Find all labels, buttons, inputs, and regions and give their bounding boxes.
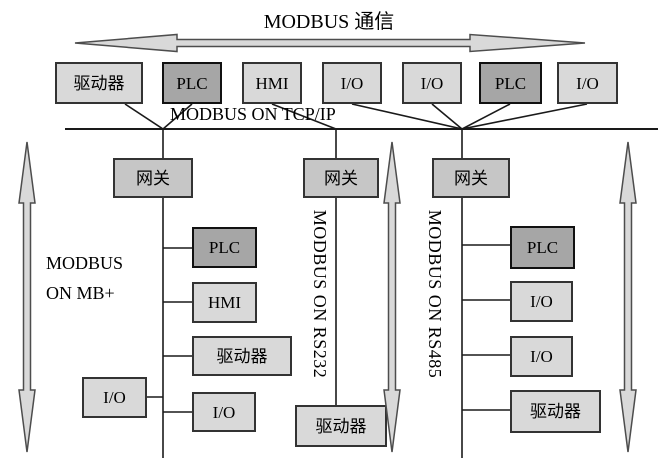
mbplus-device-driver: 驱动器: [192, 336, 292, 376]
rs485-device-stubs: [462, 245, 510, 410]
top-device-io-3: I/O: [557, 62, 618, 104]
mbplus-device-hmi: HMI: [192, 282, 257, 323]
rs232-branch-label: MODBUS ON RS232: [310, 194, 330, 394]
top-device-io-1: I/O: [322, 62, 382, 104]
rs485-branch-label: MODBUS ON RS485: [425, 194, 445, 394]
mbplus-branch-label-line2: ON MB+: [46, 278, 123, 308]
diagram-title: MODBUS 通信: [0, 5, 658, 34]
mbplus-branch-label: MODBUS ON MB+: [46, 248, 123, 308]
tcpip-bus-label: MODBUS ON TCP/IP: [170, 104, 336, 125]
top-device-plc-1: PLC: [162, 62, 222, 104]
modbus-architecture-diagram: MODBUS 通信 MODBUS ON TCP/IP MODBUS ON MB+…: [0, 0, 658, 463]
top-device-io-2: I/O: [402, 62, 462, 104]
rs485-device-plc: PLC: [510, 226, 575, 269]
rs485-device-driver: 驱动器: [510, 390, 601, 433]
mbplus-device-io-2: I/O: [192, 392, 256, 432]
mbplus-branch-label-line1: MODBUS: [46, 248, 123, 278]
gateway-mbplus: 网关: [113, 158, 193, 198]
rs232-device-driver: 驱动器: [295, 405, 387, 447]
top-device-plc-2: PLC: [479, 62, 542, 104]
mbplus-device-stubs: [147, 248, 192, 412]
gateway-rs485: 网关: [432, 158, 510, 198]
top-device-hmi: HMI: [242, 62, 302, 104]
rs485-device-io-1: I/O: [510, 281, 573, 322]
rs485-device-io-2: I/O: [510, 336, 573, 377]
mbplus-device-io-1: I/O: [82, 377, 147, 418]
gateway-rs232: 网关: [303, 158, 379, 198]
top-device-driver: 驱动器: [55, 62, 143, 104]
mbplus-device-plc: PLC: [192, 227, 257, 268]
